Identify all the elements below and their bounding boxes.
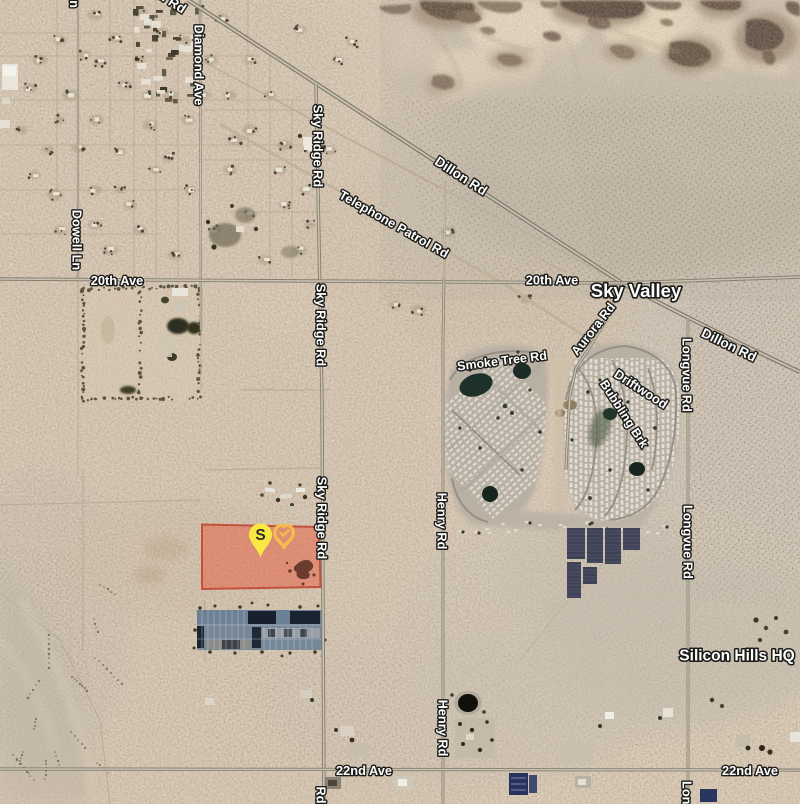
svg-text:Sky Ridge Rd: Sky Ridge Rd (315, 477, 330, 560)
svg-text:20th Ave: 20th Ave (91, 273, 143, 288)
svg-text:Henry Rd: Henry Rd (435, 493, 450, 550)
svg-text:Longvue Rd: Longvue Rd (681, 505, 696, 579)
svg-text:Sky Ridge Rd: Sky Ridge Rd (314, 284, 329, 367)
svg-text:S: S (255, 527, 265, 544)
svg-text:Silicon Hills HQ: Silicon Hills HQ (679, 648, 794, 665)
svg-text:22nd Ave: 22nd Ave (722, 763, 778, 778)
svg-text:Rd: Rd (314, 786, 329, 803)
svg-text:22nd Ave: 22nd Ave (336, 763, 392, 778)
svg-text:Sky Ridge Rd: Sky Ridge Rd (311, 105, 326, 188)
svg-text:20th Ave: 20th Ave (526, 273, 578, 288)
svg-text:Diamond Ave: Diamond Ave (192, 25, 207, 106)
svg-text:Longvue Rd: Longvue Rd (680, 781, 695, 804)
svg-text:n: n (67, 0, 81, 8)
svg-text:Henry Rd: Henry Rd (436, 700, 451, 757)
svg-text:Dowell Ln: Dowell Ln (70, 210, 85, 271)
svg-text:Longvue Rd: Longvue Rd (680, 338, 695, 412)
svg-text:Sky Valley: Sky Valley (591, 280, 682, 301)
